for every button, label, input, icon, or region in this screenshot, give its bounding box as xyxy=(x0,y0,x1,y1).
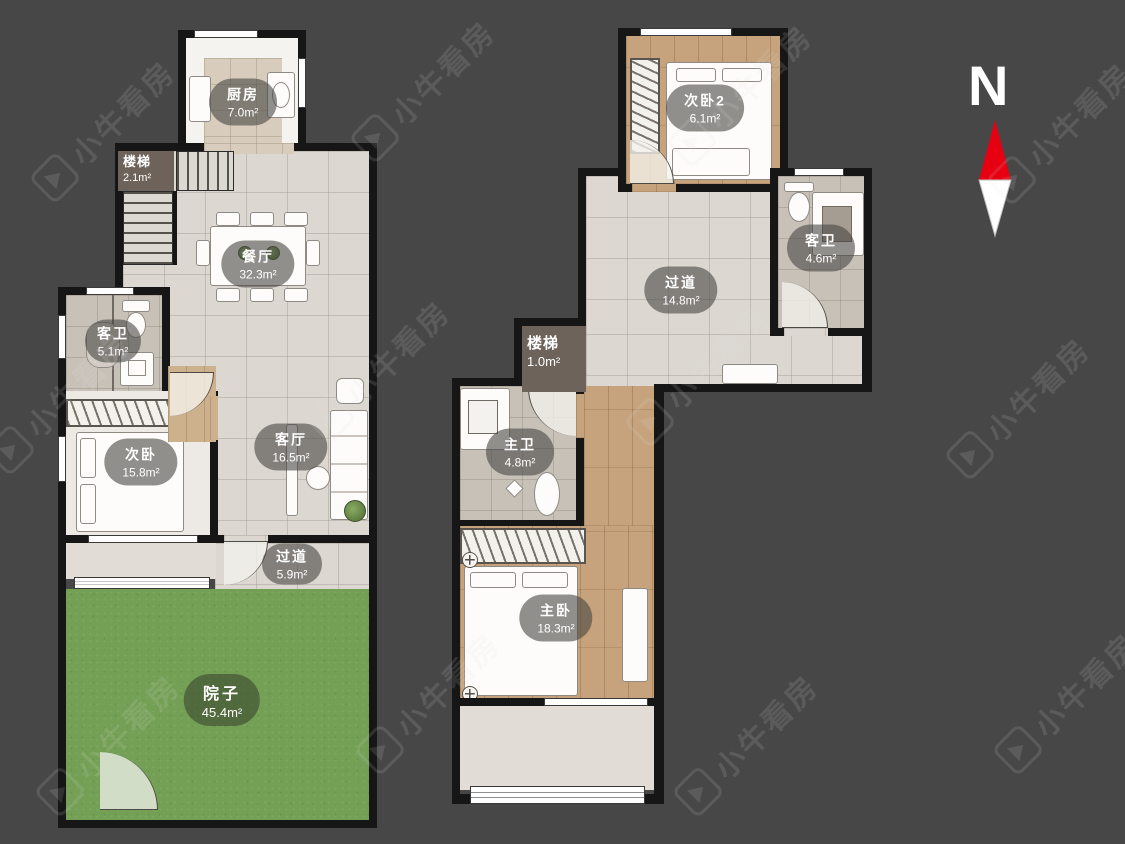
room-label-hall-1: 过道 5.9m² xyxy=(262,544,322,585)
room-label-dining: 餐厅 32.3m² xyxy=(221,241,294,288)
watermark-logo-icon xyxy=(28,151,82,205)
bath2-door-opening xyxy=(784,328,828,336)
terrace-floor xyxy=(66,543,216,579)
bathm-sink xyxy=(468,400,498,434)
living-plant xyxy=(344,500,366,522)
yard-wall-bottom xyxy=(58,820,377,828)
dining-chair xyxy=(284,212,308,226)
hall2-wall-left xyxy=(578,168,586,334)
staircase-upper-treads xyxy=(176,151,234,191)
watermark-text: 小牛看房 xyxy=(1016,51,1125,175)
kitchen-window-right xyxy=(298,58,306,108)
bedroom22-bench xyxy=(672,148,750,176)
bathm-door-opening xyxy=(576,394,584,438)
vestibule-opening xyxy=(210,396,218,440)
toilet-bowl xyxy=(534,472,560,516)
balcony-window-bottom xyxy=(470,786,645,804)
staircase-edge xyxy=(173,191,177,265)
room-label-master-bedroom: 主卧 18.3m² xyxy=(519,595,592,642)
bedroom1-window-left xyxy=(58,436,66,482)
stairs-label-1: 楼梯 2.1m² xyxy=(118,151,174,191)
wall-light xyxy=(462,552,478,568)
bath1-window-top xyxy=(86,287,134,295)
master-wall-left xyxy=(452,526,460,706)
dining-chair xyxy=(306,240,320,266)
watermark-text: 小牛看房 xyxy=(1022,621,1125,745)
yard-wall-left xyxy=(58,599,66,828)
fridge xyxy=(189,76,211,122)
watermark: 小牛看房 xyxy=(669,663,827,821)
bedroom1-window-bottom xyxy=(88,535,198,543)
room-name: 楼梯 xyxy=(123,154,169,171)
watermark-text: 小牛看房 xyxy=(702,663,826,787)
master-wardrobe xyxy=(460,528,586,564)
stairs-label-2: 楼梯 1.0m² xyxy=(522,326,586,392)
master-wall-right xyxy=(654,384,664,706)
balcony-floor xyxy=(460,706,654,790)
master-corridor-floor xyxy=(584,386,654,526)
balcony-wall-right xyxy=(654,706,664,804)
north-label: N xyxy=(968,58,1008,114)
room-label-guest-bath-1: 客卫 5.1m² xyxy=(85,320,141,363)
bed-pillow xyxy=(722,68,762,82)
watermark-text: 小牛看房 xyxy=(974,326,1098,450)
watermark-logo-icon xyxy=(943,428,997,482)
toilet-bowl xyxy=(788,192,810,222)
hall2-wall-bottom xyxy=(662,384,872,392)
balcony-door-window xyxy=(544,698,648,706)
watermark: 小牛看房 xyxy=(941,326,1099,484)
bath2-window-top xyxy=(794,168,844,176)
bed-pillow xyxy=(80,438,96,478)
washer-drum xyxy=(128,360,146,376)
room-label-living: 客厅 16.5m² xyxy=(254,424,327,471)
north-arrow-icon xyxy=(975,118,1015,238)
dining-chair xyxy=(284,288,308,302)
bed-pillow xyxy=(80,484,96,524)
watermark-logo-icon xyxy=(671,765,725,819)
bed-pillow xyxy=(470,572,516,588)
room-label-master-bath: 主卫 4.8m² xyxy=(486,429,554,476)
terrace-window xyxy=(74,577,210,589)
dining-chair xyxy=(216,288,240,302)
dining-chair xyxy=(196,240,210,266)
bedroom22-door-opening xyxy=(632,184,676,192)
wall-right xyxy=(369,143,377,828)
bath1-window-left xyxy=(58,315,66,359)
bed-pillow xyxy=(676,68,716,82)
room-label-hall-2: 过道 14.8m² xyxy=(644,267,717,314)
terrace-wall-left xyxy=(58,543,66,599)
watermark-logo-icon xyxy=(991,723,1045,777)
room-label-bedroom22: 次卧2 6.1m² xyxy=(666,85,744,132)
dining-chair xyxy=(250,288,274,302)
toilet-tank xyxy=(784,182,814,192)
room-label-guest-bath-2: 客卫 4.6m² xyxy=(787,225,855,272)
bedroom22-window-top xyxy=(640,28,732,36)
toilet-tank xyxy=(122,300,150,312)
staircase-run xyxy=(123,191,173,265)
bed-pillow xyxy=(522,572,568,588)
hall2-cabinet xyxy=(722,364,778,384)
watermark-text: 小牛看房 xyxy=(379,9,503,133)
dining-chair xyxy=(250,212,274,226)
window-seat-cabinet xyxy=(622,588,648,682)
room-label-yard: 院子 45.4m² xyxy=(184,674,260,726)
watermark: 小牛看房 xyxy=(989,621,1125,779)
balcony-wall-left xyxy=(452,706,460,804)
dining-chair xyxy=(216,212,240,226)
floor-plan-canvas: 楼梯 2.1m² xyxy=(0,0,1125,844)
watermark-logo-icon xyxy=(0,423,37,477)
hall2-wall-top xyxy=(578,168,626,176)
armchair xyxy=(336,378,364,404)
kitchen-window-top xyxy=(194,30,258,38)
room-label-kitchen: 厨房 7.0m² xyxy=(209,79,277,126)
room-label-bedroom2: 次卧 15.8m² xyxy=(104,439,177,486)
room-area: 2.1m² xyxy=(123,171,169,185)
